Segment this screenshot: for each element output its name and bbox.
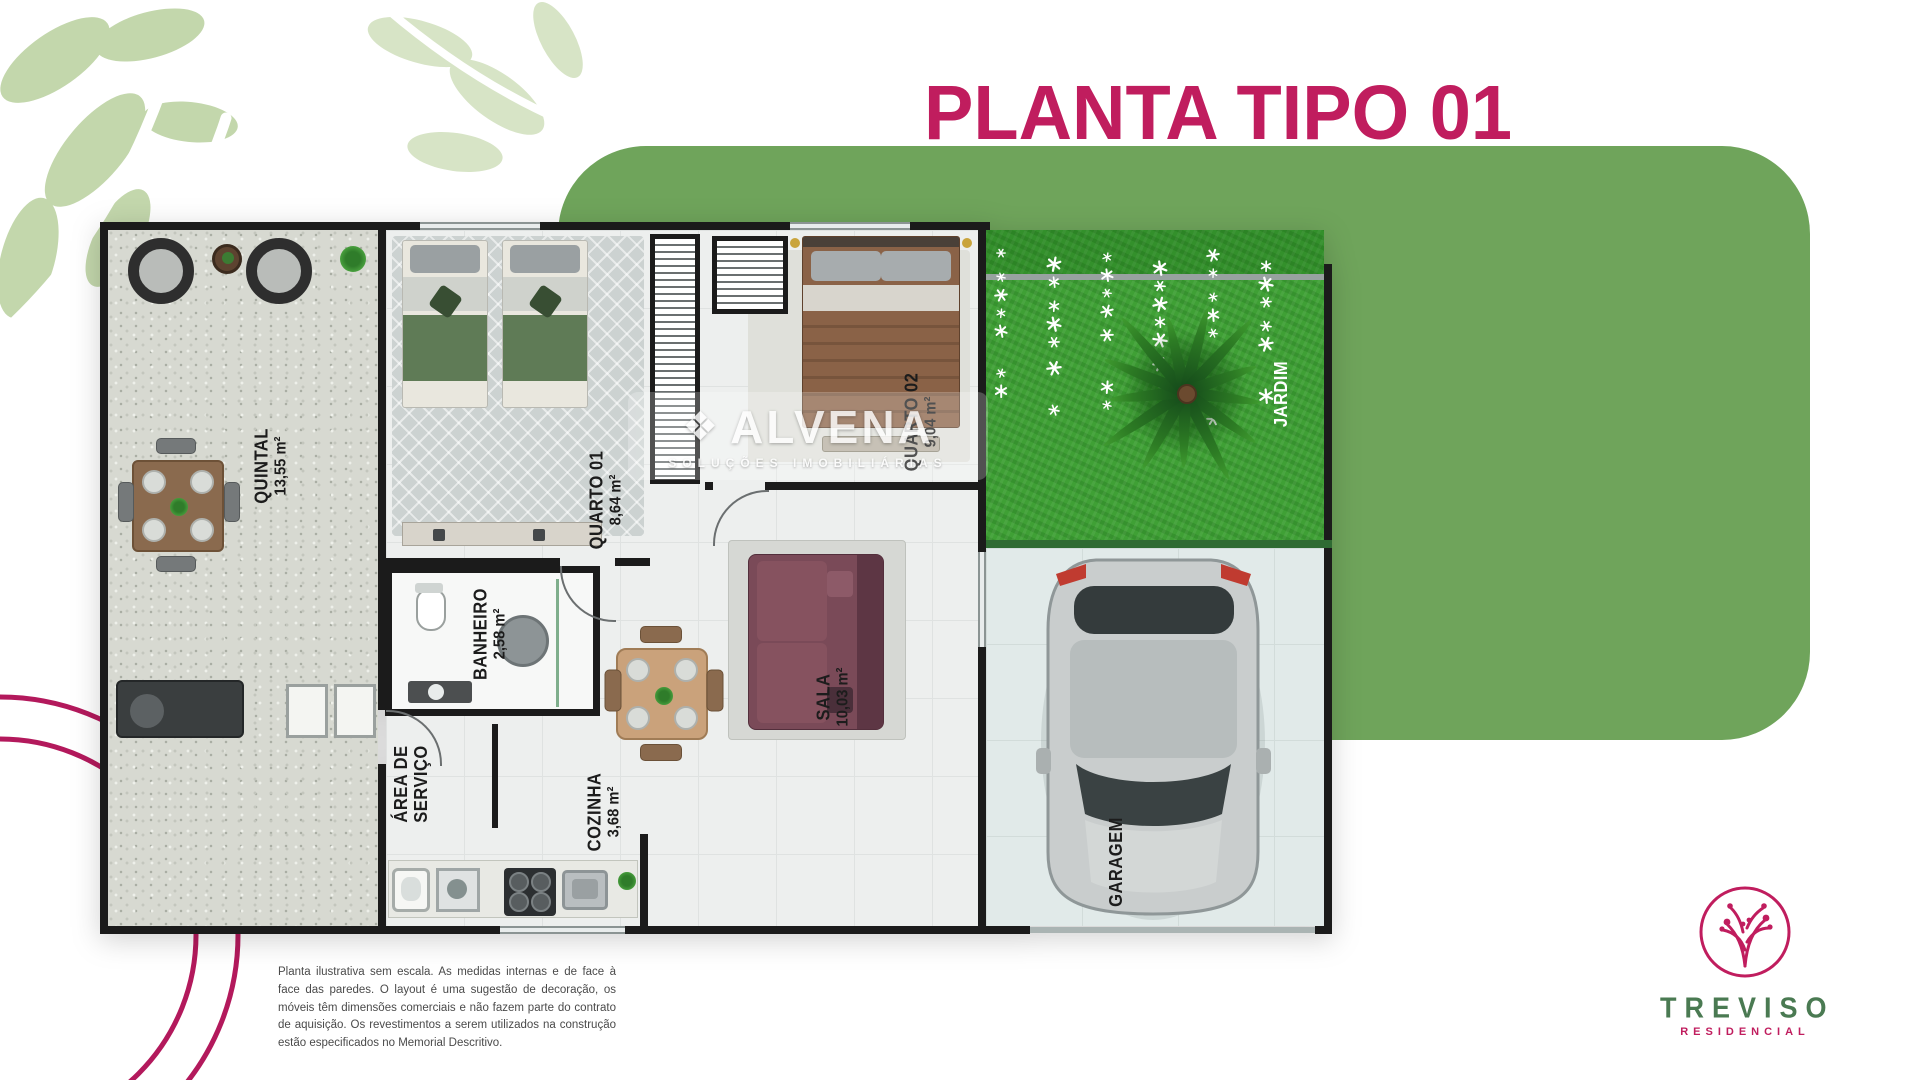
- flower-icon: [1260, 262, 1271, 270]
- diamond-icon: ❖: [682, 407, 718, 447]
- brand-name: TREVISO: [1660, 992, 1830, 1025]
- kitchen-plant: [618, 872, 636, 890]
- flower-icon: [1103, 253, 1112, 261]
- brand-subtitle: RESIDENCIAL: [1660, 1026, 1830, 1038]
- watermark-tagline: SOLUÇÕES IMOBILIÁRIAS: [634, 456, 982, 470]
- patio-chair: [156, 556, 196, 572]
- watermark: ❖ ALVENA SOLUÇÕES IMOBILIÁRIAS: [628, 392, 988, 480]
- dining-chair: [640, 626, 682, 643]
- room-label-quarto01: QUARTO 018,64 m²: [587, 446, 624, 553]
- flower-icon: [1152, 264, 1168, 272]
- outdoor-cabinet: [286, 684, 328, 738]
- logo-emblem-icon: [1697, 884, 1793, 980]
- flower-icon: [1050, 337, 1058, 348]
- flower-icon: [1102, 329, 1111, 342]
- wardrobe-closet: [712, 236, 788, 314]
- wall: [615, 558, 650, 566]
- laundry-sink: [392, 868, 430, 912]
- wall: [705, 482, 713, 490]
- garage-gate: [1030, 927, 1315, 933]
- flower-icon: [1102, 403, 1112, 407]
- plant-pot: [212, 244, 242, 274]
- flower-icon: [1262, 297, 1270, 308]
- wall: [492, 724, 498, 828]
- flower-icon: [996, 289, 1006, 301]
- lounge-chair: [128, 238, 194, 304]
- bedroom1-shelf: [402, 522, 602, 546]
- flower-icon: [1046, 321, 1062, 328]
- flower-icon: [1260, 337, 1272, 351]
- brand-logo: TREVISO RESIDENCIAL: [1660, 884, 1830, 1038]
- room-label-cozinha: COZINHA3,68 m²: [585, 769, 622, 855]
- flower-icon: [994, 387, 1007, 396]
- lounge-chair: [246, 238, 312, 304]
- wall-lamp: [790, 238, 800, 248]
- flower-icon: [1049, 302, 1060, 310]
- page-title: PLANTA TIPO 01: [924, 68, 1512, 156]
- dining-chair: [640, 744, 682, 761]
- poster-canvas: PLANTA TIPO 01: [0, 0, 1920, 1080]
- flower-icon: [996, 252, 1006, 254]
- watermark-name: ALVENA: [730, 400, 934, 454]
- flower-icon: [1208, 249, 1219, 261]
- single-bed: [502, 240, 588, 408]
- room-label-jardim: JARDIM: [1272, 358, 1292, 430]
- room-label-quintal: QUINTAL13,55 m²: [252, 425, 289, 507]
- room-label-banheiro: BANHEIRO2,58 m²: [471, 584, 508, 684]
- floor-plan: QUINTAL13,55 m² QUARTO 018,64 m² QUARTO …: [100, 222, 1332, 934]
- wall: [640, 834, 648, 934]
- flower-icon: [994, 328, 1008, 334]
- window: [790, 222, 910, 230]
- wall: [385, 558, 560, 566]
- bathroom-vanity: [408, 681, 472, 703]
- wall-lamp: [962, 238, 972, 248]
- wall-plant: [340, 246, 366, 272]
- car-icon: [1036, 552, 1271, 922]
- flower-icon: [1154, 319, 1165, 326]
- flower-icon: [1048, 361, 1060, 375]
- room-label-area-servico: ÁREA DESERVIÇO: [392, 742, 432, 826]
- flower-icon: [1100, 272, 1114, 279]
- flower-icon: [1209, 293, 1217, 301]
- dining-chair: [605, 670, 622, 712]
- wall: [978, 222, 986, 552]
- window: [420, 222, 540, 230]
- flower-icon: [1101, 305, 1112, 316]
- flower-icon: [1154, 298, 1167, 311]
- window: [500, 926, 625, 934]
- shower-glass: [556, 579, 559, 707]
- dining-table: [616, 648, 708, 740]
- kitchen-sink: [562, 870, 608, 910]
- flower-icon: [1101, 382, 1114, 392]
- sliding-door: [978, 552, 986, 647]
- disclaimer-text: Planta ilustrativa sem escala. As medida…: [278, 964, 616, 1053]
- flower-icon: [996, 275, 1006, 279]
- flower-icon: [1048, 279, 1060, 285]
- stove: [504, 868, 556, 916]
- patio-chair: [224, 482, 240, 522]
- single-bed: [402, 240, 488, 408]
- flower-icon: [997, 369, 1005, 377]
- room-label-garagem: GARAGEM: [1107, 813, 1127, 911]
- flower-icon: [1260, 324, 1272, 327]
- wall: [378, 764, 386, 934]
- room-quintal: [108, 230, 378, 926]
- wall: [100, 222, 108, 934]
- outdoor-cabinet: [334, 684, 376, 738]
- patio-table: [132, 460, 224, 552]
- room-label-sala: SALA10,03 m²: [814, 665, 851, 729]
- flower-icon: [1048, 408, 1060, 412]
- wall: [1324, 264, 1332, 934]
- flower-icon: [1258, 281, 1274, 287]
- hedge-wall: [986, 540, 1332, 548]
- flower-icon: [1154, 285, 1166, 288]
- flower-icon: [1208, 270, 1217, 277]
- toilet: [416, 589, 446, 631]
- bbq-grill: [116, 680, 244, 738]
- flower-icon: [1102, 292, 1112, 294]
- dining-chair: [707, 670, 724, 712]
- flower-icon: [997, 310, 1006, 317]
- washing-machine: [436, 868, 480, 912]
- wall: [765, 482, 985, 490]
- wall: [378, 222, 386, 710]
- wall: [978, 647, 986, 934]
- patio-chair: [156, 438, 196, 454]
- flower-icon: [1047, 258, 1061, 270]
- patio-chair: [118, 482, 134, 522]
